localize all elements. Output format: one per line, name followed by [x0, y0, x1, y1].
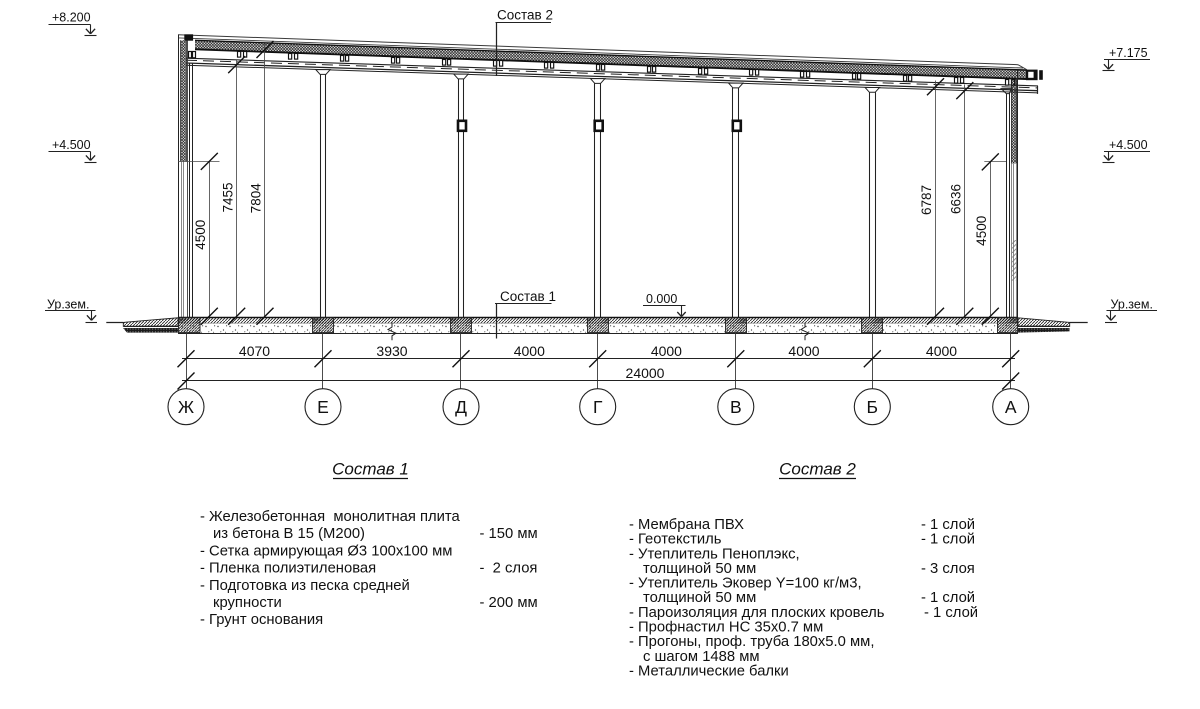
svg-text:из бетона В 15 (М200): из бетона В 15 (М200) — [213, 526, 365, 542]
svg-text:- Пленка полиэтиленовая: - Пленка полиэтиленовая — [200, 561, 376, 577]
svg-text:- Пароизоляция для плоских кро: - Пароизоляция для плоских кровель — [629, 605, 885, 621]
svg-text:4000: 4000 — [926, 343, 957, 359]
svg-text:7804: 7804 — [249, 183, 264, 214]
svg-text:4500: 4500 — [974, 216, 989, 246]
svg-text:- Грунт основания: - Грунт основания — [200, 612, 323, 628]
svg-text:Г: Г — [593, 397, 603, 417]
svg-text:4000: 4000 — [514, 343, 545, 359]
svg-text:- Металлические балки: - Металлические балки — [629, 664, 789, 680]
svg-text:- 2 слоя: - 2 слоя — [480, 561, 538, 577]
svg-text:+4.500: +4.500 — [52, 138, 91, 152]
svg-text:Состав 2: Состав 2 — [779, 460, 856, 479]
svg-text:4000: 4000 — [651, 343, 682, 359]
svg-text:7455: 7455 — [220, 182, 235, 212]
svg-text:толщиной 50 мм: толщиной 50 мм — [643, 590, 756, 606]
svg-text:А: А — [1005, 397, 1017, 417]
svg-text:- 1 слой: - 1 слой — [921, 590, 975, 606]
svg-text:- Подготовка из песка средней: - Подготовка из песка средней — [200, 578, 410, 594]
svg-text:Ур.зем.: Ур.зем. — [47, 297, 89, 311]
svg-text:В: В — [730, 397, 742, 417]
svg-text:Е: Е — [317, 397, 329, 417]
svg-text:- Прогоны, проф. труба 180х5.0: - Прогоны, проф. труба 180х5.0 мм, — [629, 634, 874, 650]
svg-text:6636: 6636 — [948, 184, 963, 214]
svg-text:Ур.зем.: Ур.зем. — [1111, 297, 1153, 311]
svg-text:Д: Д — [455, 397, 467, 417]
svg-text:+4.500: +4.500 — [1109, 138, 1148, 152]
svg-text:- 1 слой: - 1 слой — [921, 532, 975, 548]
svg-text:- Мембрана ПВХ: - Мембрана ПВХ — [629, 517, 744, 533]
svg-text:- 3 слоя: - 3 слоя — [921, 561, 975, 577]
svg-text:- Сетка армирующая Ø3 100х100: - Сетка армирующая Ø3 100х100 мм — [200, 543, 452, 559]
svg-text:Ж: Ж — [178, 397, 194, 417]
svg-text:- Утеплитель Эковер Y=100 кг/м: - Утеплитель Эковер Y=100 кг/м3, — [629, 576, 862, 592]
svg-text:крупности: крупности — [213, 595, 282, 611]
svg-text:- 1 слой: - 1 слой — [921, 517, 975, 533]
svg-text:- Геотекстиль: - Геотекстиль — [629, 532, 722, 548]
svg-text:- 200 мм: - 200 мм — [480, 595, 538, 611]
svg-text:+8.200: +8.200 — [52, 11, 91, 25]
svg-text:Состав 1: Состав 1 — [332, 460, 409, 479]
svg-text:0.000: 0.000 — [646, 292, 677, 306]
svg-text:Состав 2: Состав 2 — [497, 7, 553, 22]
svg-text:4070: 4070 — [239, 343, 270, 359]
svg-text:толщиной 50 мм: толщиной 50 мм — [643, 561, 756, 577]
svg-text:4500: 4500 — [193, 220, 208, 250]
svg-text:+7.175: +7.175 — [1109, 46, 1148, 60]
svg-text:24000: 24000 — [626, 365, 665, 381]
svg-text:- Железобетонная монолитная п: - Железобетонная монолитная плита — [200, 509, 461, 525]
svg-text:с шагом 1488 мм: с шагом 1488 мм — [643, 649, 760, 665]
svg-text:Б: Б — [867, 397, 878, 417]
svg-text:Состав 1: Состав 1 — [500, 289, 556, 304]
svg-text:- Профнастил НС 35х0.7 мм: - Профнастил НС 35х0.7 мм — [629, 620, 823, 636]
svg-text:- Утеплитель Пеноплэкс,: - Утеплитель Пеноплэкс, — [629, 546, 800, 562]
svg-text:- 1 слой: - 1 слой — [924, 605, 978, 621]
svg-text:3930: 3930 — [376, 343, 407, 359]
svg-text:- 150 мм: - 150 мм — [480, 526, 538, 542]
svg-text:4000: 4000 — [788, 343, 819, 359]
svg-text:6787: 6787 — [919, 185, 934, 215]
